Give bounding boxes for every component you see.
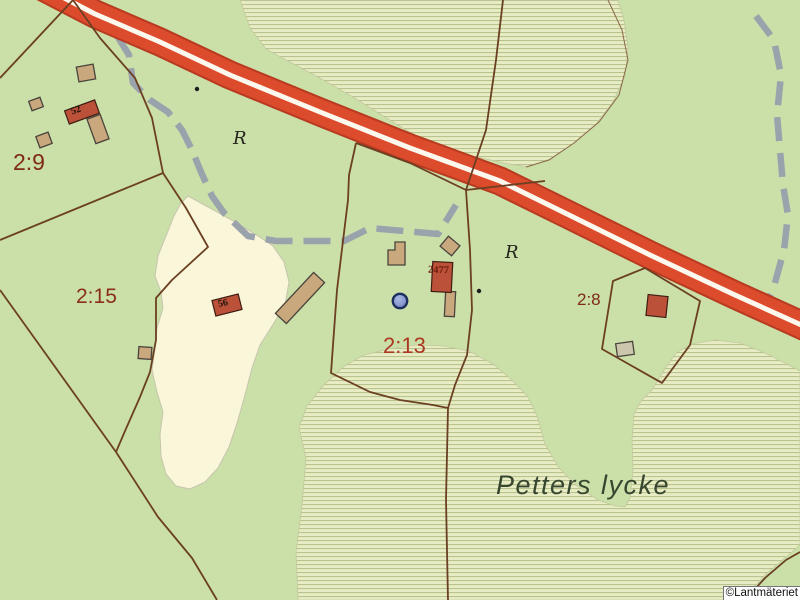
map-canvas[interactable]: 2:9 2:15 2:13 2:8 52 56 2477 R R Petters… (0, 0, 800, 600)
point-symbol (195, 87, 199, 91)
copyright-label: ©Lantmäteriet (723, 586, 800, 600)
building-2-8 (646, 295, 668, 318)
map-layers (0, 0, 800, 600)
point-symbol (477, 289, 481, 293)
well-icon (393, 294, 407, 308)
building-2477 (431, 261, 453, 292)
